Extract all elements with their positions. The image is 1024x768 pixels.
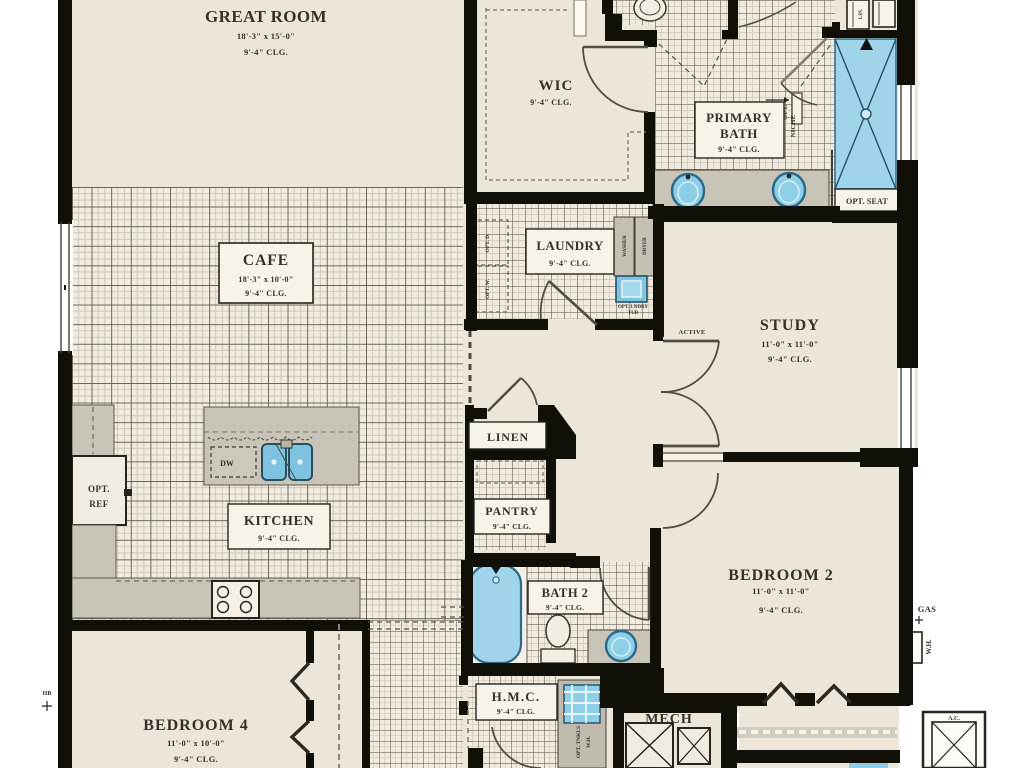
svg-text:18'-3" x 10'-0": 18'-3" x 10'-0" [238,275,293,284]
svg-text:9'-4" CLG.: 9'-4" CLG. [493,522,531,531]
svg-text:9'-4" CLG.: 9'-4" CLG. [718,145,760,154]
svg-text:OPT. SEAT: OPT. SEAT [846,197,888,206]
svg-text:BEDROOM 2: BEDROOM 2 [728,567,833,584]
svg-text:9'-4" CLG.: 9'-4" CLG. [759,605,803,615]
svg-text:OPT. W.: OPT. W. [485,278,491,299]
svg-text:WIC: WIC [539,78,574,94]
svg-text:BEDROOM 4: BEDROOM 4 [143,717,248,734]
svg-text:DW: DW [220,459,234,468]
svg-text:CAFE: CAFE [243,252,289,269]
svg-text:LIN.: LIN. [859,8,864,19]
svg-text:9'-4" CLG.: 9'-4" CLG. [546,603,584,612]
svg-text:OPT.: OPT. [88,484,110,494]
svg-text:W.H.: W.H. [925,639,933,655]
svg-text:11'-0" x 11'-0": 11'-0" x 11'-0" [761,339,818,349]
svg-text:MECH: MECH [645,712,693,727]
svg-text:OPT. D.: OPT. D. [485,233,491,253]
svg-text:BATH: BATH [720,126,758,141]
svg-text:GREAT ROOM: GREAT ROOM [205,7,327,26]
svg-text:9'-4" CLG.: 9'-4" CLG. [244,47,288,57]
svg-text:GAS: GAS [918,604,936,614]
svg-text:WASHER: WASHER [623,235,628,257]
svg-text:STUDY: STUDY [760,317,820,334]
svg-text:TUB: TUB [628,311,639,316]
svg-text:9'-4" CLG.: 9'-4" CLG. [530,98,572,107]
svg-text:9'-4" CLG.: 9'-4" CLG. [549,259,591,268]
svg-text:H.M.C.: H.M.C. [492,689,541,704]
svg-text:18'-3" x 15'-0": 18'-3" x 15'-0" [237,31,295,41]
svg-text:KITCHEN: KITCHEN [244,514,314,529]
svg-text:PRIMARY: PRIMARY [706,110,772,125]
svg-text:OPT. TNKLS: OPT. TNKLS [576,726,582,758]
svg-text:A.C.: A.C. [948,716,960,722]
svg-text:11'-0" x 11'-0": 11'-0" x 11'-0" [752,586,809,596]
svg-text:LAUNDRY: LAUNDRY [536,238,604,253]
svg-text:9'-4" CLG.: 9'-4" CLG. [174,754,218,764]
svg-text:PANTRY: PANTRY [485,504,539,518]
svg-text:11'-0" x 10'-0": 11'-0" x 10'-0" [167,738,225,748]
svg-text:ACTIVE: ACTIVE [678,329,705,336]
svg-text:DRYER: DRYER [643,237,648,255]
svg-text:W.H.: W.H. [586,735,592,748]
svg-text:REF: REF [89,499,109,509]
svg-text:NICHE: NICHE [790,115,797,138]
svg-text:9'-4" CLG.: 9'-4" CLG. [497,707,535,716]
svg-text:9'-4" CLG.: 9'-4" CLG. [258,534,300,543]
svg-text:LINEN: LINEN [487,430,529,444]
svg-text:9'-4" CLG.: 9'-4" CLG. [768,354,812,364]
svg-text:HB: HB [43,691,52,697]
svg-text:BATH 2: BATH 2 [542,586,589,600]
svg-text:OPT. LNDRY: OPT. LNDRY [618,305,648,310]
svg-text:9'-4" CLG.: 9'-4" CLG. [245,289,287,298]
